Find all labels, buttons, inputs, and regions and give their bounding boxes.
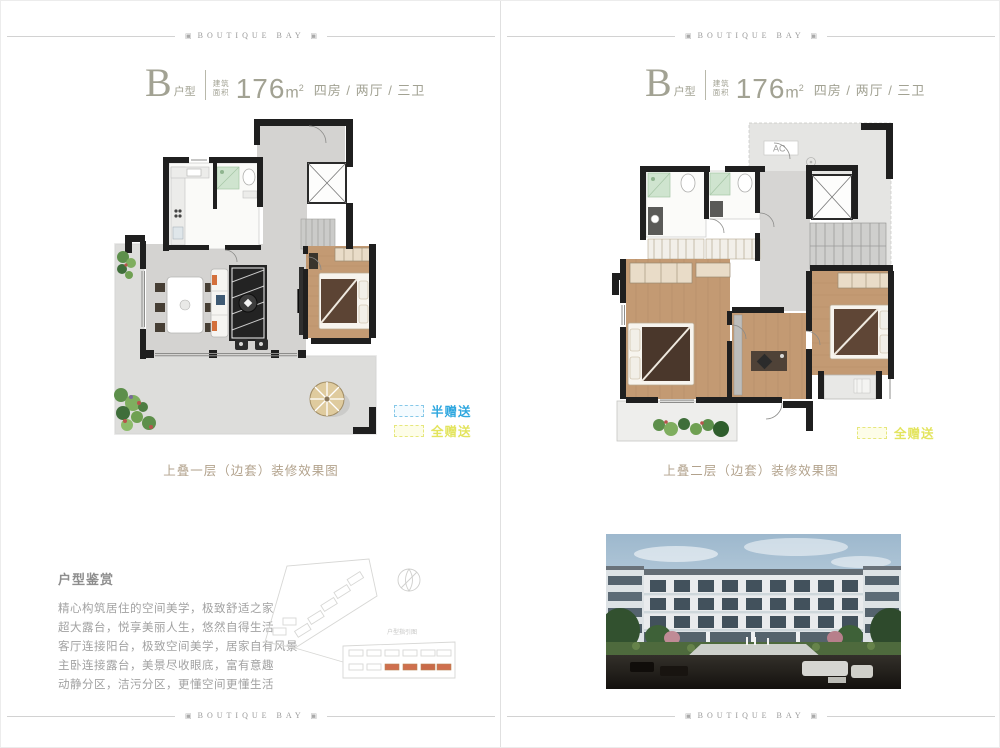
dining-table: [155, 277, 215, 333]
legend-full-gift: 全赠送: [857, 423, 935, 442]
corridor: [263, 201, 307, 247]
brand-ornament-icon: ▣: [810, 32, 817, 40]
unit-letter: B: [145, 63, 172, 103]
page-divider: [500, 1, 501, 748]
area-value: 176: [736, 75, 786, 103]
brand-header: ▣ BOUTIQUE BAY ▣: [501, 31, 1000, 40]
bed: [628, 323, 694, 385]
unit-layout: 四房 / 两厅 / 三卫: [314, 80, 426, 103]
legend-full-label: 全赠送: [431, 421, 472, 440]
unit-category: 户型: [674, 83, 696, 103]
floorplan-level1: [113, 107, 403, 463]
appreciation-line: 超大露台，悦享美丽人生，悠然自得生活: [58, 619, 268, 638]
terrace: [617, 401, 737, 441]
stairs: [301, 219, 335, 249]
stairs: [810, 223, 886, 269]
brand-ornament-icon: ▣: [185, 32, 192, 40]
site-map-label: 户型指引图: [387, 628, 417, 636]
legend-full-swatch: [857, 427, 887, 439]
bookshelf: [734, 315, 742, 395]
brand-footer: ▣ BOUTIQUE BAY ▣: [1, 711, 501, 720]
legend-half-label: 半赠送: [431, 401, 472, 420]
wardrobe: [838, 273, 892, 288]
title-divider: [705, 70, 706, 100]
rug: [229, 265, 267, 341]
unit-title: B 户型 建筑 面积 176 m2 四房 / 两厅 / 三卫: [645, 57, 925, 103]
unit-letter: B: [645, 63, 672, 103]
highlighted-units: [385, 664, 451, 670]
unit-title: B 户型 建筑 面积 176 m2 四房 / 两厅 / 三卫: [145, 57, 425, 103]
legend-half-swatch: [394, 405, 424, 417]
appreciation-section: 户型鉴赏 精心构筑居住的空间美学，极致舒适之家 超大露台，悦享美丽人生，悠然自得…: [58, 569, 268, 695]
legend-full-label: 全赠送: [894, 423, 935, 442]
appreciation-title: 户型鉴赏: [58, 569, 268, 588]
area-unit: m2: [285, 83, 303, 103]
appreciation-line: 主卧连接露台，美景尽收眼底，富有意趣: [58, 657, 268, 676]
main-building: [644, 569, 863, 642]
compass-icon: [398, 569, 420, 591]
tv-screen: [297, 289, 299, 313]
balcony: [824, 375, 876, 399]
unit-category: 户型: [174, 83, 196, 103]
elevator: [308, 163, 346, 203]
page-level2: ▣ BOUTIQUE BAY ▣ B 户型 建筑 面积 176 m2 四房 / …: [501, 1, 1000, 748]
legend-full-gift: 全赠送: [394, 421, 472, 440]
plan-caption-level2: 上叠二层（边套）装修效果图: [501, 460, 1000, 479]
brand-text: BOUTIQUE BAY: [198, 31, 305, 40]
dresser: [309, 253, 318, 269]
bedroom-2: [812, 271, 892, 375]
plan-caption-level1: 上叠一层（边套）装修效果图: [1, 460, 501, 479]
brand-ornament-icon: ▣: [810, 712, 817, 720]
brand-text: BOUTIQUE BAY: [698, 711, 805, 720]
brochure-spread: ▣ BOUTIQUE BAY ▣ B 户型 建筑 面积 176 m2 四房 / …: [0, 0, 1000, 748]
bed: [830, 305, 890, 359]
ac-label: AC: [773, 144, 786, 154]
bed: [319, 273, 371, 329]
brand-ornament-icon: ▣: [310, 712, 317, 720]
area-label: 建筑 面积: [713, 79, 730, 103]
legend-half-gift: 半赠送: [394, 401, 472, 420]
brand-ornament-icon: ▣: [185, 712, 192, 720]
exterior-rendering-photo: [606, 534, 901, 689]
area-value: 176: [236, 75, 286, 103]
brand-ornament-icon: ▣: [310, 32, 317, 40]
bathroom-1: [646, 171, 706, 237]
appreciation-line: 动静分区，洁污分区，更懂空间更懂生活: [58, 676, 268, 695]
unit-layout: 四房 / 两厅 / 三卫: [814, 80, 926, 103]
brand-header: ▣ BOUTIQUE BAY ▣: [1, 31, 501, 40]
brand-footer: ▣ BOUTIQUE BAY ▣: [501, 711, 1000, 720]
page-level1: ▣ BOUTIQUE BAY ▣ B 户型 建筑 面积 176 m2 四房 / …: [1, 1, 501, 748]
bathroom-2: [708, 171, 760, 219]
hallway: [760, 171, 810, 311]
brand-ornament-icon: ▣: [685, 32, 692, 40]
master-bedroom: [626, 259, 730, 399]
appreciation-line: 客厅连接阳台，极致空间美学，居家自有风景: [58, 638, 268, 657]
floorplan-level2: AC: [599, 113, 904, 463]
site-map-diagram: 户型指引图: [257, 554, 474, 704]
study: [732, 313, 806, 399]
brand-ornament-icon: ▣: [685, 712, 692, 720]
title-divider: [205, 70, 206, 100]
legend-full-swatch: [394, 425, 424, 437]
sofa: [211, 269, 228, 337]
area-label: 建筑 面积: [213, 79, 230, 103]
brand-text: BOUTIQUE BAY: [198, 711, 305, 720]
appreciation-line: 精心构筑居住的空间美学，极致舒适之家: [58, 600, 268, 619]
brand-text: BOUTIQUE BAY: [698, 31, 805, 40]
elevator: [812, 175, 852, 219]
area-unit: m2: [785, 83, 803, 103]
walk-in-closet: [648, 239, 760, 259]
